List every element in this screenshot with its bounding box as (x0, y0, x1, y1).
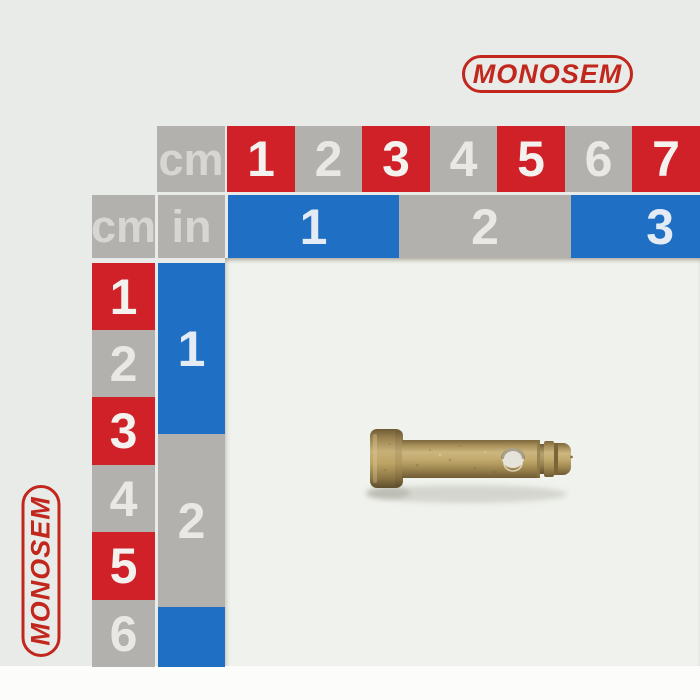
top-in-cell-2: 2 (399, 195, 571, 258)
top-cm-cell-1: 1 (227, 126, 295, 192)
left-cm-cell-1: 1 (92, 263, 155, 330)
monosem-logo-top: MONOSEM (462, 55, 633, 93)
left-cm-cell-2: 2 (92, 330, 155, 397)
pin-tip-cap (558, 443, 571, 475)
top-in-cell-3: 3 (571, 195, 700, 258)
top-cm-cell-2: 2 (295, 126, 362, 192)
left-cm-cell-4: 4 (92, 465, 155, 532)
top-cm-cell-3: 3 (362, 126, 430, 192)
top-in-cell-1: 1 (228, 195, 399, 258)
left-ruler-cm-label: cm (92, 195, 155, 258)
left-cm-cell-3: 3 (92, 397, 155, 465)
left-in-cell-1: 1 (158, 263, 225, 434)
brass-clevis-pin-photo (355, 410, 575, 520)
monosem-logo-left-wrap: MONOSEM (21, 485, 60, 657)
pin-tip-groove (554, 443, 558, 475)
top-cm-cell-4: 4 (430, 126, 497, 192)
top-ruler-cm-label: cm (157, 126, 225, 192)
monosem-logo-left: MONOSEM (21, 485, 60, 657)
top-cm-cell-7: 7 (632, 126, 700, 192)
left-cm-cell-5: 5 (92, 532, 155, 600)
left-cm-cell-6: 6 (92, 600, 155, 667)
left-in-cell-2: 2 (158, 434, 225, 607)
ruler-in-label: in (158, 195, 225, 258)
photo-bottom-edge (0, 666, 700, 700)
top-cm-cell-6: 6 (565, 126, 632, 192)
left-in-cell-3 (158, 607, 225, 667)
pin-tip-ring (544, 441, 554, 477)
top-cm-cell-5: 5 (497, 126, 565, 192)
measuring-board-photo: cm 1 2 3 4 5 6 7 cm in 1 2 3 1 2 3 4 5 6… (0, 0, 700, 700)
